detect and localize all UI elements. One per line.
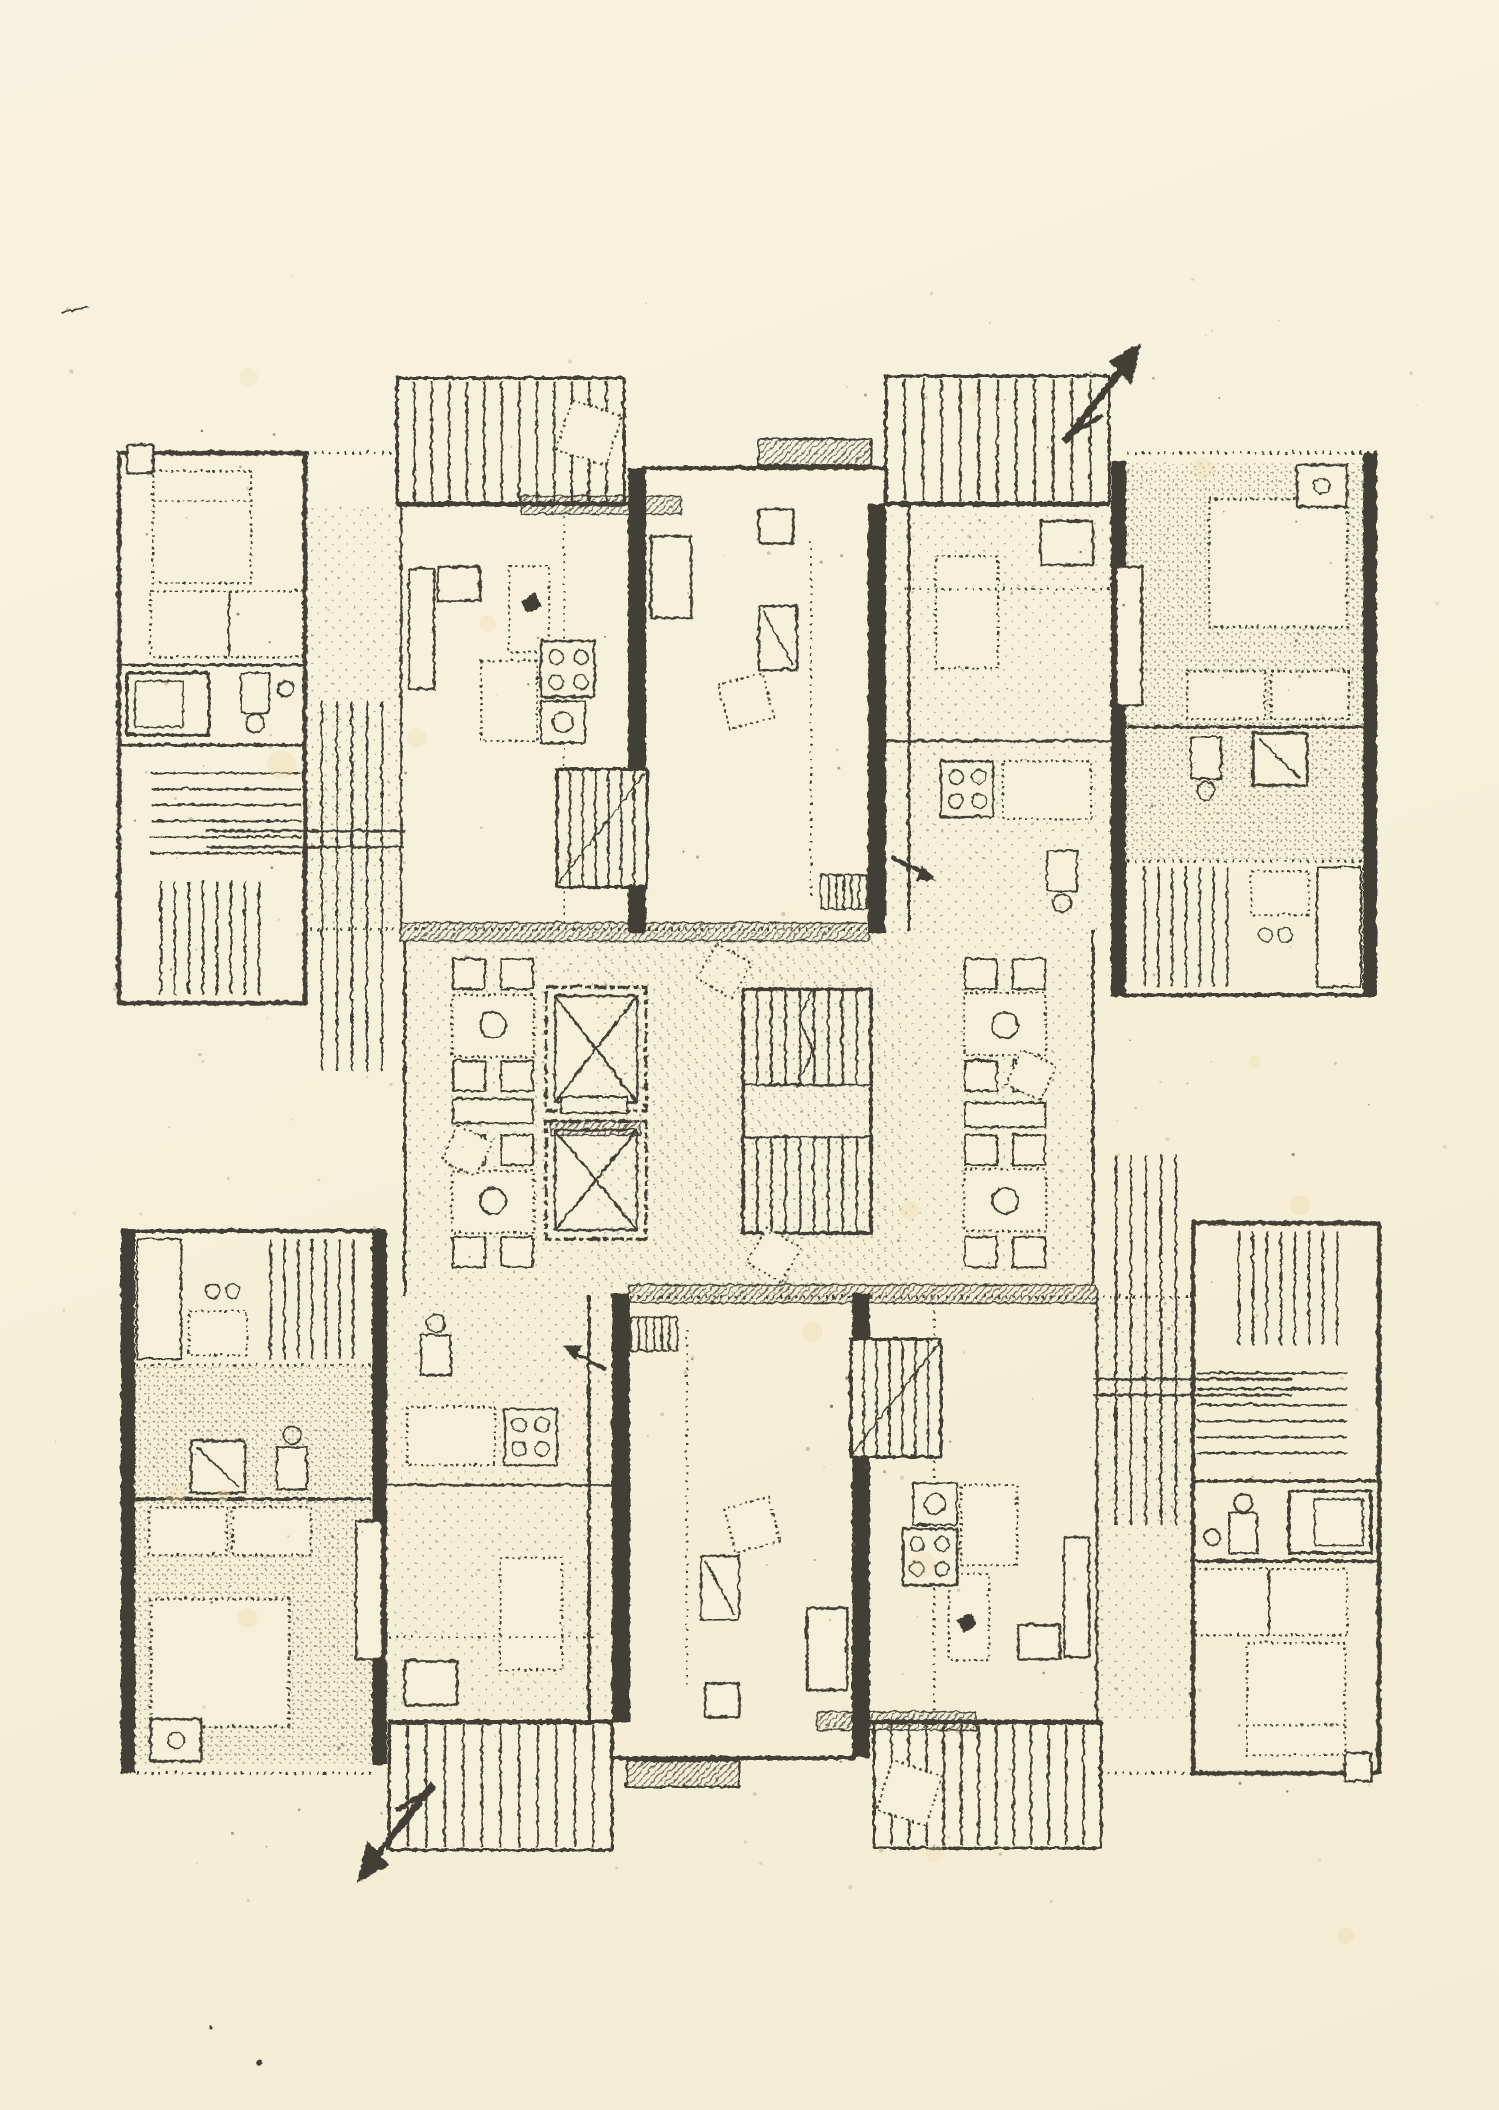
outer-wall bbox=[1110, 460, 1125, 993]
party-wall bbox=[867, 503, 885, 932]
facade-planter bbox=[626, 1760, 738, 1786]
wardrobe bbox=[355, 1520, 381, 1658]
chair bbox=[723, 1496, 779, 1552]
bench bbox=[452, 1098, 532, 1122]
sofa bbox=[650, 535, 690, 617]
entry-hatch bbox=[160, 880, 258, 994]
kitchen-hatch bbox=[1144, 866, 1227, 986]
wardrobe bbox=[1115, 566, 1141, 704]
bathtub bbox=[126, 672, 208, 734]
threshold-hatch bbox=[520, 495, 680, 513]
stool bbox=[758, 508, 792, 542]
sink-unit bbox=[912, 1482, 956, 1524]
bed bbox=[1208, 498, 1346, 626]
bed bbox=[935, 555, 997, 667]
cabinet bbox=[1040, 520, 1092, 564]
stove bbox=[504, 1408, 556, 1464]
dresser bbox=[148, 1506, 226, 1554]
outer-wall bbox=[371, 1231, 386, 1764]
circle bbox=[1277, 927, 1291, 941]
counter bbox=[960, 1484, 1016, 1564]
stove bbox=[540, 640, 594, 696]
door-mat bbox=[820, 874, 866, 908]
nightstand bbox=[1344, 1752, 1370, 1780]
circle bbox=[1233, 1493, 1251, 1511]
circle bbox=[205, 1283, 219, 1297]
counter bbox=[1250, 870, 1308, 914]
kitchen-hatch bbox=[270, 1238, 353, 1358]
threshold-hatch bbox=[816, 1711, 976, 1729]
balcony-railing bbox=[885, 375, 1108, 503]
entry-hatch bbox=[1238, 1230, 1336, 1344]
sink bbox=[1203, 1528, 1219, 1544]
margin-dot bbox=[255, 2059, 261, 2065]
bed bbox=[499, 1557, 561, 1669]
dresser bbox=[1186, 670, 1264, 718]
toilet bbox=[240, 672, 268, 712]
stool bbox=[704, 1682, 738, 1716]
sink-unit bbox=[540, 700, 584, 742]
sink bbox=[277, 680, 293, 696]
scanned-paper-sheet bbox=[0, 0, 1499, 2110]
outer-wall bbox=[1362, 452, 1376, 992]
outer-wall bbox=[120, 1232, 134, 1772]
mirrored-half bbox=[120, 929, 1378, 1882]
facade-planter bbox=[758, 438, 870, 464]
shelving bbox=[150, 772, 300, 852]
toilet bbox=[420, 1334, 450, 1374]
margin-dot bbox=[208, 2024, 212, 2028]
door-mat bbox=[630, 1316, 676, 1350]
dresser bbox=[1270, 670, 1348, 718]
toilet bbox=[1046, 850, 1076, 890]
nightstand bbox=[126, 444, 152, 472]
circle bbox=[1257, 927, 1271, 941]
toilet bbox=[1228, 1512, 1256, 1552]
bed bbox=[1246, 1642, 1344, 1754]
bathtub bbox=[1288, 1490, 1370, 1552]
party-wall bbox=[611, 1292, 629, 1721]
margin-mark bbox=[62, 305, 88, 312]
nightstand bbox=[1296, 464, 1346, 506]
circle bbox=[225, 1283, 239, 1297]
counter bbox=[1002, 760, 1090, 818]
counter bbox=[480, 660, 536, 740]
dresser bbox=[232, 1506, 310, 1554]
closet bbox=[150, 590, 302, 656]
floor-plan-drawing bbox=[0, 0, 1499, 2110]
radiator bbox=[1063, 1536, 1088, 1656]
closet bbox=[1194, 1568, 1346, 1634]
sofa bbox=[437, 566, 479, 600]
counter bbox=[406, 1406, 494, 1464]
toilet bbox=[276, 1446, 306, 1488]
radiator bbox=[408, 568, 433, 688]
circle bbox=[245, 713, 263, 731]
bed bbox=[152, 470, 250, 582]
core-boundary bbox=[628, 1284, 1096, 1302]
toilet bbox=[1190, 736, 1220, 778]
cabinet bbox=[404, 1660, 456, 1704]
sofa bbox=[806, 1607, 846, 1689]
sofa bbox=[1017, 1624, 1059, 1658]
shelving bbox=[1196, 1372, 1346, 1452]
bed bbox=[150, 1598, 288, 1726]
bench bbox=[964, 1102, 1044, 1126]
nightstand bbox=[150, 1718, 200, 1760]
fridge bbox=[136, 1238, 180, 1358]
chair bbox=[717, 672, 773, 728]
ink-layer bbox=[62, 305, 1378, 2065]
stove bbox=[940, 760, 992, 816]
counter bbox=[188, 1310, 246, 1354]
balcony-railing bbox=[388, 1721, 611, 1849]
fridge bbox=[1316, 866, 1360, 986]
